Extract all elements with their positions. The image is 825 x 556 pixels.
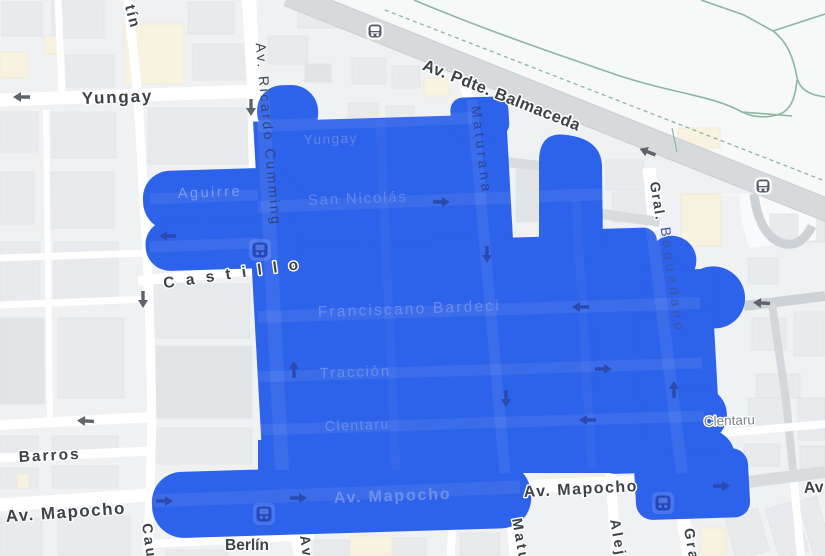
svg-text:Aguirre: Aguirre	[178, 184, 243, 202]
svg-text:Yungay: Yungay	[304, 131, 359, 148]
svg-text:Tracción: Tracción	[320, 364, 392, 382]
svg-text:Clentaru: Clentaru	[325, 416, 390, 434]
svg-text:Yungay: Yungay	[81, 87, 153, 108]
svg-text:Barros: Barros	[18, 446, 81, 466]
svg-text:Clentaru: Clentaru	[704, 412, 756, 429]
svg-text:Av.: Av.	[297, 534, 317, 556]
svg-text:Av: Av	[803, 479, 824, 497]
svg-text:San Nicolás: San Nicolás	[308, 189, 408, 209]
svg-text:Berlín: Berlín	[225, 537, 269, 554]
